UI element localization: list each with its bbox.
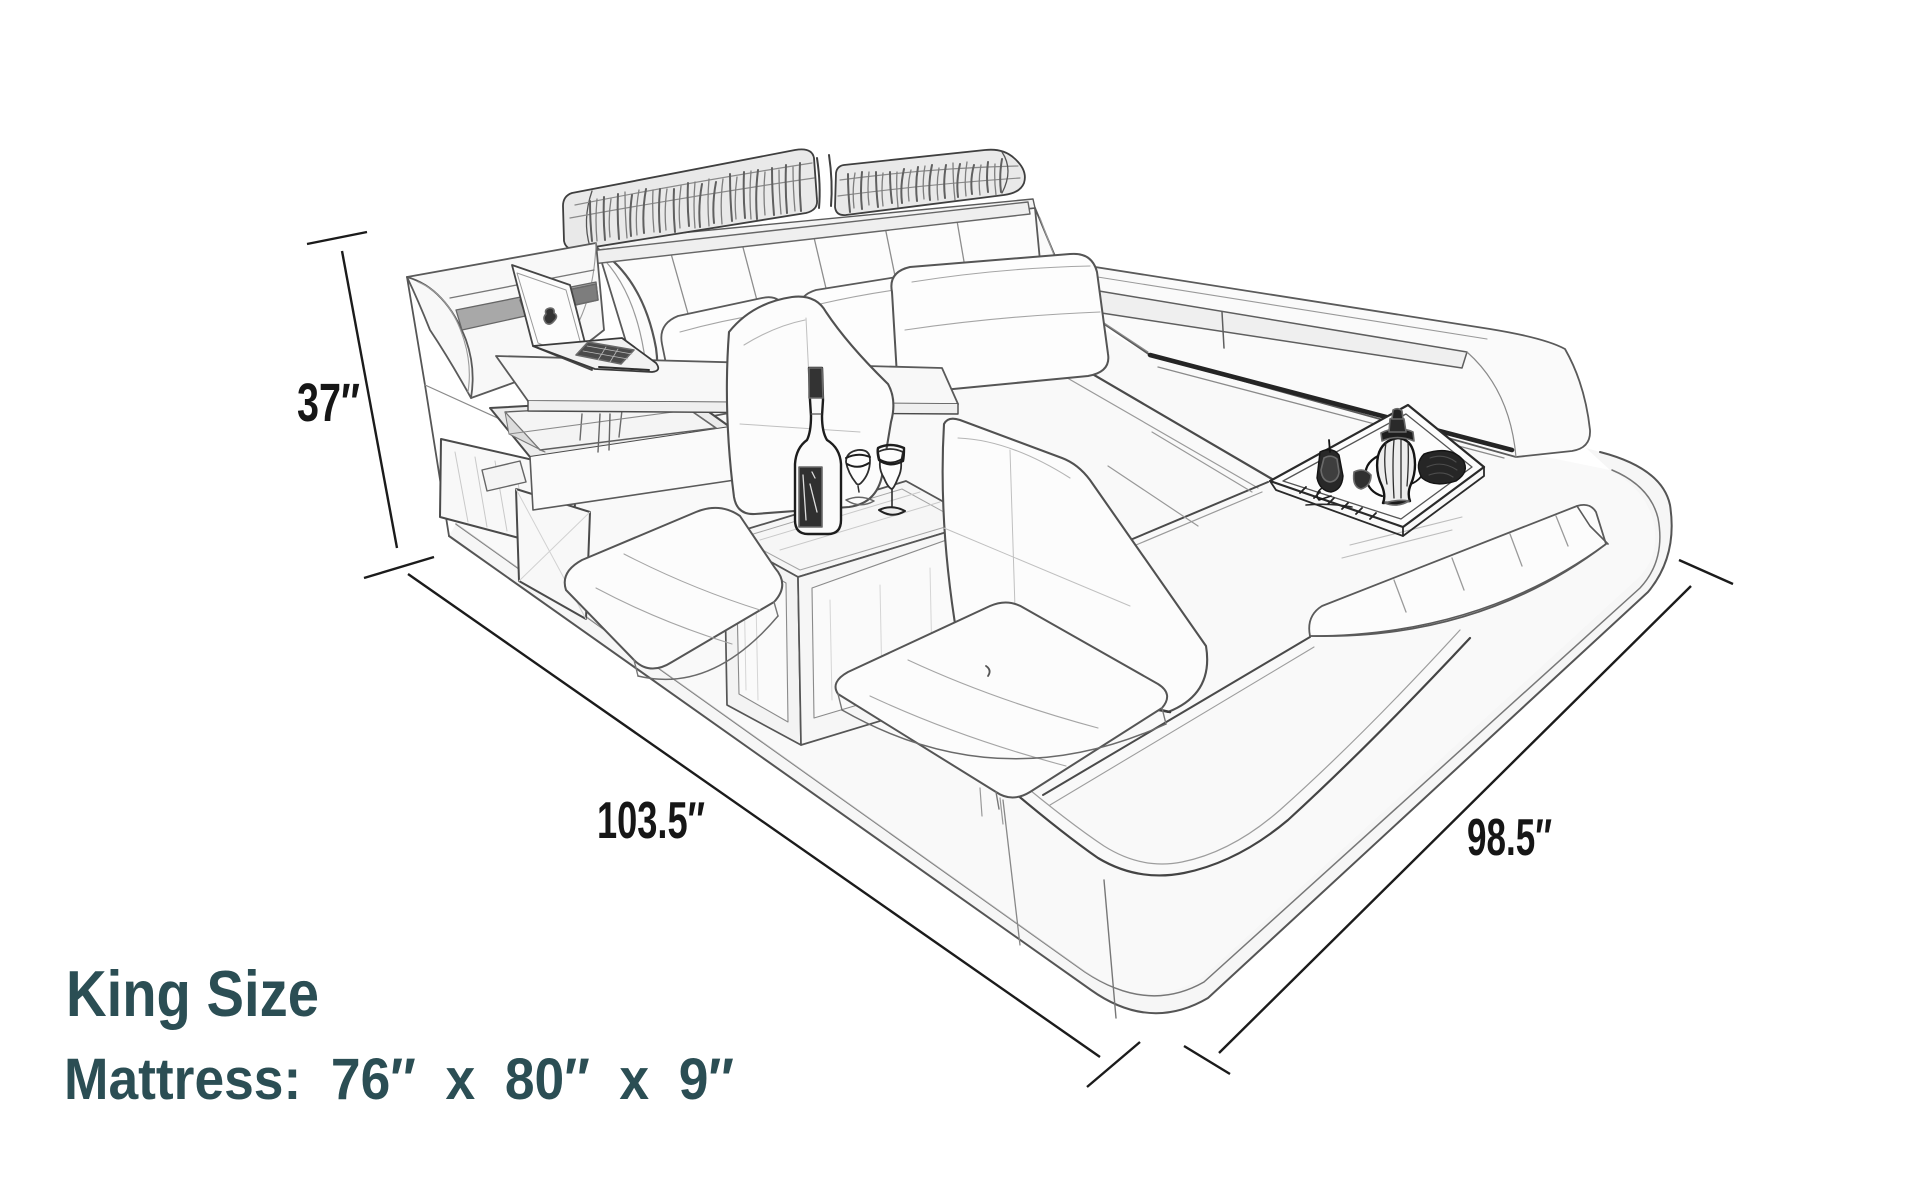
svg-text:98.5″: 98.5″	[1467, 809, 1552, 867]
svg-text:King Size: King Size	[66, 957, 319, 1030]
svg-text:37″: 37″	[297, 373, 360, 433]
svg-text:103.5″: 103.5″	[597, 792, 705, 850]
svg-text:Mattress: 76″ x 80″ x 9″: Mattress: 76″ x 80″ x 9″	[64, 1047, 734, 1112]
